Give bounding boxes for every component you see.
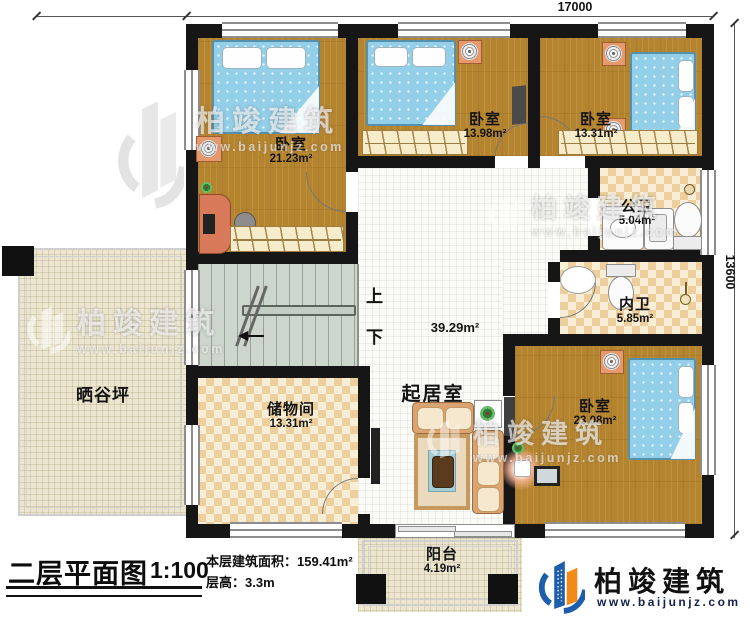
sofa-cushion	[477, 487, 500, 512]
wall	[358, 156, 495, 168]
computer-monitor-icon	[203, 214, 215, 234]
wall	[198, 366, 370, 378]
wall	[358, 514, 370, 524]
sliding-door-panel	[454, 531, 512, 537]
plant-icon	[480, 406, 495, 421]
yard-railing-inner	[26, 256, 182, 508]
pillow	[266, 47, 306, 69]
wall	[528, 24, 540, 168]
lamp-icon	[461, 43, 478, 60]
plant-icon	[512, 442, 524, 454]
toilet-tank	[673, 236, 702, 250]
wall	[702, 255, 714, 365]
balcony-column-left	[356, 574, 386, 604]
door-leaf	[504, 397, 515, 436]
floor-area-value: 159.41m²	[297, 554, 353, 569]
floor-height-value: 3.3m	[245, 575, 275, 590]
room-label-balcony: 阳台 4.19m²	[397, 546, 487, 576]
sofa-cushion	[445, 407, 472, 430]
window	[700, 365, 716, 475]
floor-height-line: 层高：3.3m	[206, 572, 275, 591]
wall	[515, 524, 545, 538]
room-label-storage-room: 储物间 13.31m²	[246, 401, 336, 431]
title-underline	[6, 586, 202, 597]
lamp-icon	[200, 140, 217, 157]
wall	[685, 524, 714, 538]
sofa-cushion	[417, 407, 444, 430]
dimension-right-value: 13600	[723, 242, 737, 302]
brand-logo-icon	[535, 554, 585, 616]
room-label-bedroom-bottom-right: 卧室 23.08m²	[550, 398, 640, 428]
lamp-icon	[603, 353, 620, 370]
lamp-icon	[605, 45, 622, 62]
window	[222, 22, 338, 38]
wall	[588, 168, 600, 198]
pillow	[222, 47, 262, 69]
pillow	[678, 366, 694, 398]
plan-scale: 1:100	[150, 557, 209, 584]
dimension-line-top	[36, 16, 714, 17]
window	[545, 522, 685, 538]
bed	[212, 40, 320, 134]
dimension-tick	[709, 11, 718, 20]
room-label-public-bathroom: 公卫 5.04m²	[601, 198, 673, 228]
sliding-door	[395, 524, 515, 538]
pillow	[374, 47, 408, 67]
stairs-up-label: 上	[366, 282, 383, 307]
floor-plan-canvas: 上 下 卧室 21.23m² 卧室 13.98m² 卧室 13.31m² 公卫 …	[0, 0, 750, 625]
brand-name: 柏竣建筑	[594, 560, 730, 600]
direction-arrow-icon	[238, 331, 248, 341]
wall	[198, 252, 358, 264]
wall	[186, 24, 198, 70]
floor-area-line: 本层建筑面积：159.41m²	[206, 551, 353, 570]
window	[700, 170, 716, 255]
wall	[560, 250, 714, 262]
room-label-bedroom-top-left: 卧室 21.23m²	[246, 136, 336, 166]
window	[598, 22, 686, 38]
wardrobe	[230, 226, 344, 252]
wall	[346, 24, 358, 172]
ghost-brand-logo-icon	[116, 88, 184, 214]
toilet-icon	[674, 202, 702, 238]
room-label-bedroom-top-middle: 卧室 13.98m²	[440, 111, 530, 141]
floor-lamp-icon	[514, 460, 531, 477]
floor-height-label: 层高：	[206, 575, 245, 590]
wall	[702, 24, 714, 170]
wall	[342, 524, 395, 538]
dimension-top-value: 17000	[540, 0, 610, 14]
sliding-door-panel	[398, 526, 456, 532]
wall	[186, 365, 198, 425]
wall	[585, 156, 702, 168]
floor-drain-icon	[684, 184, 695, 195]
window	[184, 425, 200, 505]
stairs-down-label: 下	[366, 323, 383, 348]
wall	[548, 262, 560, 282]
direction-arrow-line	[248, 335, 264, 337]
wall	[503, 346, 515, 396]
floor-corridor-lower	[503, 262, 548, 334]
window	[184, 270, 200, 365]
floor-corridor-upper	[503, 168, 588, 262]
sofa-cushion	[477, 461, 500, 486]
sofa	[412, 402, 474, 434]
room-label-living-room-area: 39.29m²	[410, 321, 500, 336]
yard-column	[2, 246, 34, 276]
brand-website: www.baijunjz.com	[597, 595, 741, 609]
balcony-column-right	[488, 574, 518, 604]
room-label-drying-yard: 晒谷坪	[53, 386, 153, 406]
pillow	[678, 96, 694, 128]
wall	[186, 524, 230, 538]
wall	[186, 150, 198, 270]
pillow	[678, 402, 694, 434]
plant-icon	[201, 182, 212, 193]
pull-light-icon	[680, 294, 691, 305]
stairs-edge	[357, 264, 359, 366]
room-label-inner-bathroom: 内卫 5.85m²	[590, 296, 680, 326]
sofa	[472, 430, 504, 514]
pillow	[678, 60, 694, 92]
room-label-bedroom-top-right: 卧室 13.31m²	[551, 111, 641, 141]
room-label-living-room: 起居室	[383, 384, 483, 406]
wall	[358, 378, 370, 478]
floor-area-label: 本层建筑面积：	[206, 554, 297, 569]
pillow	[412, 47, 446, 67]
window	[230, 522, 342, 538]
window	[398, 22, 510, 38]
pull-cord	[685, 282, 687, 294]
basin-icon	[560, 266, 596, 294]
wall	[503, 334, 714, 346]
tv-screen	[537, 469, 557, 483]
tv-icon	[371, 428, 380, 484]
sofa-cushion	[477, 435, 500, 460]
coffee-table	[432, 456, 454, 488]
